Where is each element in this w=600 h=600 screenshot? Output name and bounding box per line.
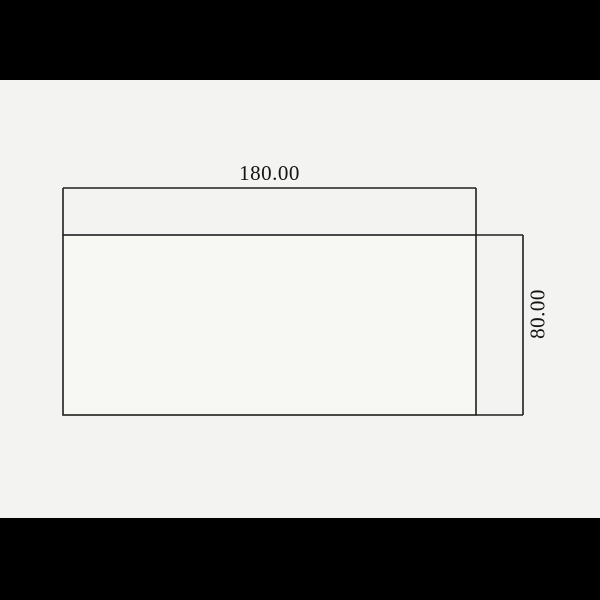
letterbox-bottom [0, 518, 600, 600]
letterbox-top [0, 0, 600, 80]
height-dimension-label: 80.00 [528, 289, 549, 339]
drawing-canvas: 180.00 80.00 [0, 80, 600, 518]
technical-drawing [0, 80, 600, 518]
part-rectangle [63, 235, 476, 415]
screenshot-stage: 180.00 80.00 [0, 0, 600, 600]
width-dimension-label: 180.00 [63, 163, 476, 184]
